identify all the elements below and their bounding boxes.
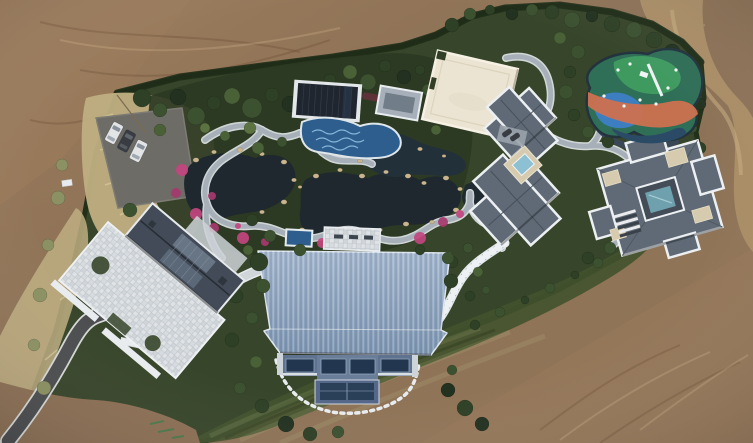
- aerial-photo-canvas: [0, 0, 753, 443]
- aerial-photo: [0, 0, 753, 443]
- vignette: [0, 0, 753, 443]
